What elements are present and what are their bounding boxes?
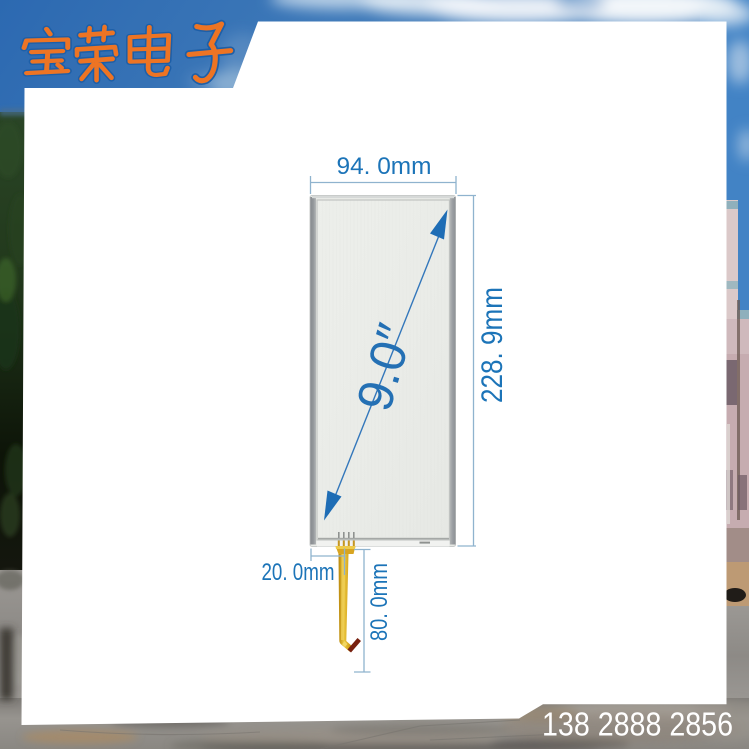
svg-text:138 2888 2856: 138 2888 2856 — [542, 707, 733, 744]
svg-text:80. 0mm: 80. 0mm — [366, 563, 393, 641]
svg-text:20. 0mm: 20. 0mm — [262, 559, 335, 586]
svg-text:94. 0mm: 94. 0mm — [337, 153, 432, 180]
svg-text:228. 9mm: 228. 9mm — [476, 287, 509, 403]
